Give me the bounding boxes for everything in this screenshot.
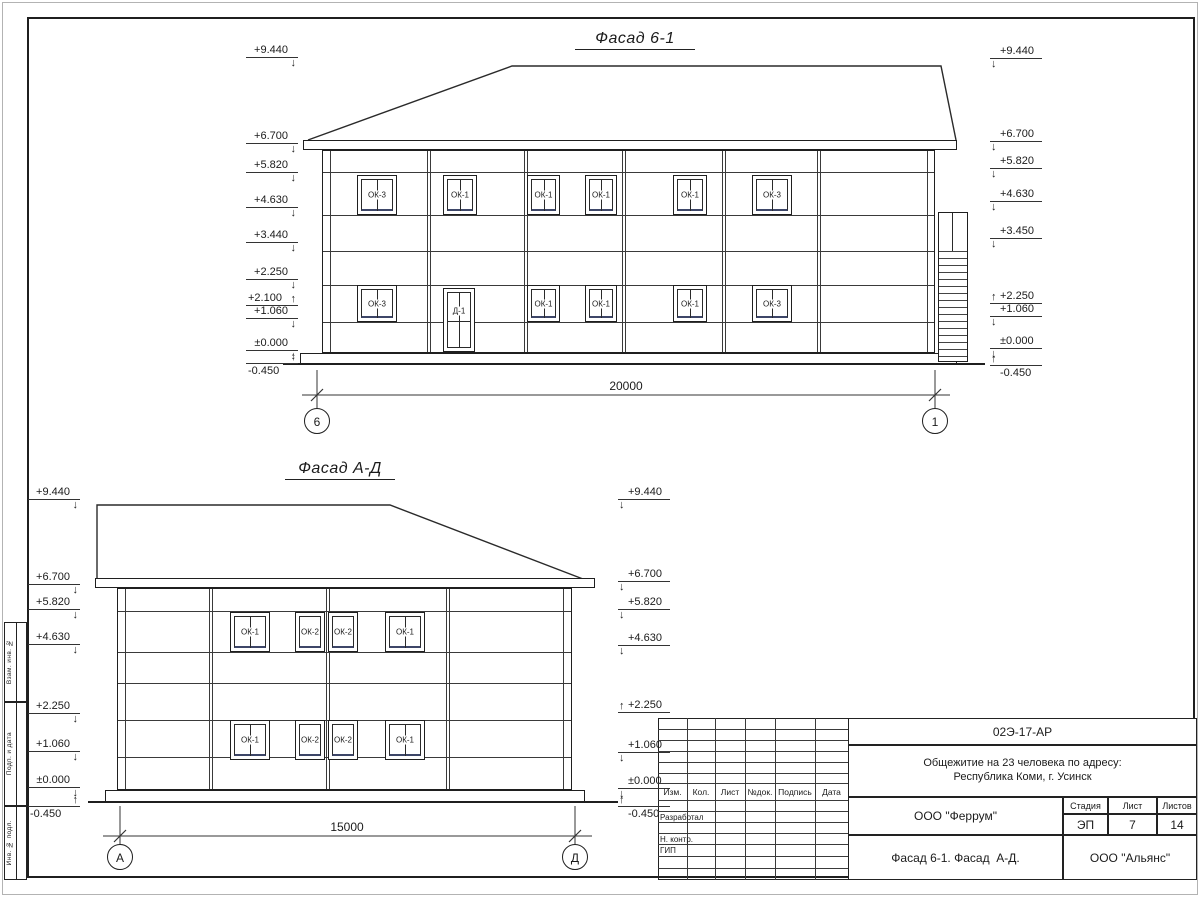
elevation-mark: +3.450↓	[990, 224, 1042, 254]
roof-fascia	[303, 140, 957, 150]
elevation-mark: +4.630↓	[618, 631, 670, 661]
window-label: ОК-3	[367, 299, 387, 308]
window-label: ОК-2	[300, 736, 320, 745]
facade1-dimension: 20000	[596, 379, 656, 393]
panel-joint-horizontal	[118, 683, 571, 684]
elevation-mark: +1.060↓	[28, 737, 80, 767]
stage-label-cell: Стадия	[1063, 797, 1108, 814]
window-ОК-2: ОК-2	[328, 612, 358, 652]
elevation-shelf	[990, 365, 1042, 366]
elevation-value: +6.700	[618, 568, 670, 580]
panel-joint-vertical	[817, 151, 818, 352]
window-ОК-1: ОК-1	[585, 175, 617, 215]
elevation-mark: +4.630↓	[990, 187, 1042, 217]
panel-joint-horizontal	[323, 251, 934, 252]
side-stamp-cell: Подп. и дата	[4, 702, 27, 806]
window-ОК-3: ОК-3	[357, 175, 397, 215]
arrow-down-icon: ↓	[991, 169, 997, 180]
panel-joint-vertical	[524, 151, 525, 352]
title-block-grid-line	[658, 729, 848, 730]
panel-joint-vertical	[446, 589, 447, 789]
axis-circle: А	[107, 844, 133, 870]
arrow-down-icon: ↓	[291, 319, 297, 330]
arrow-up-icon: ↑	[73, 795, 79, 806]
window-ОК-2: ОК-2	[295, 720, 325, 760]
elevation-mark: +9.440↓	[28, 485, 80, 515]
panel-joint-horizontal	[323, 322, 934, 323]
elevation-value: +2.250	[246, 266, 298, 278]
window-ОК-3: ОК-3	[357, 285, 397, 322]
window-label: ОК-1	[534, 299, 554, 308]
title-block-grid-line	[658, 856, 848, 857]
arrow-down-icon: ↓	[619, 582, 625, 593]
arrow-down-icon: ↓	[291, 208, 297, 219]
ladder-rungs	[939, 251, 967, 361]
elevation-value: +3.450	[990, 225, 1042, 237]
arrow-up-icon: ↑	[291, 352, 297, 363]
elevation-mark: +6.700↓	[990, 127, 1042, 157]
window-label: ОК-1	[240, 628, 260, 637]
panel-joint-horizontal	[323, 172, 934, 173]
plinth	[105, 790, 585, 802]
title-block-grid-line	[658, 740, 848, 741]
arrow-down-icon: ↓	[619, 646, 625, 657]
window-ОК-3: ОК-3	[752, 285, 792, 322]
project-line1: Общежитие на 23 человека по адресу:	[923, 757, 1121, 771]
window-label: ОК-1	[240, 736, 260, 745]
window-label: ОК-1	[450, 191, 470, 200]
window-ОК-1: ОК-1	[385, 612, 425, 652]
arrow-down-icon: ↓	[991, 239, 997, 250]
elevation-value: -0.450	[28, 808, 80, 820]
elevation-value: -0.450	[246, 365, 298, 377]
project-name-cell: Общежитие на 23 человека по адресу: Респ…	[848, 745, 1197, 797]
elevation-value: +4.630	[618, 632, 670, 644]
railing-post	[952, 213, 953, 251]
arrow-down-icon: ↓	[73, 714, 79, 725]
elevation-mark: +6.700↓	[246, 129, 298, 159]
elevation-value: +5.820	[246, 159, 298, 171]
sheet-number-cell: 7	[1108, 814, 1157, 835]
title-block-grid-line	[658, 751, 848, 752]
panel-joint-vertical	[449, 589, 450, 789]
axis-circle: 1	[922, 408, 948, 434]
window-label: ОК-2	[300, 628, 320, 637]
entrance-door: Д-1	[443, 288, 475, 352]
arrow-up-icon: ↑	[991, 354, 997, 365]
column-header: №док.	[745, 784, 775, 799]
elevation-value: +6.700	[28, 571, 80, 583]
pilaster-line	[927, 151, 928, 352]
sheet-label-cell: Лист	[1108, 797, 1157, 814]
window-label: ОК-1	[680, 299, 700, 308]
arrow-down-icon: ↓	[619, 610, 625, 621]
elevation-shelf	[28, 806, 80, 807]
elevation-value: +6.700	[246, 130, 298, 142]
axis-circle: Д	[562, 844, 588, 870]
arrow-down-icon: ↓	[291, 243, 297, 254]
window-label: ОК-1	[680, 191, 700, 200]
side-stamp-cell: Взам. инв. №	[4, 622, 27, 702]
role-label: Разработал	[660, 811, 715, 823]
elevation-mark: -0.450↑	[246, 349, 298, 379]
pilaster-line	[330, 151, 331, 352]
elevation-value: +4.630	[246, 194, 298, 206]
exterior-ladder	[938, 212, 968, 362]
title-block-grid-line	[658, 762, 848, 763]
window-ОК-1: ОК-1	[527, 175, 560, 215]
sheets-total-cell: 14	[1157, 814, 1197, 835]
elevation-value: +9.440	[990, 45, 1042, 57]
elevation-shelf	[618, 806, 670, 807]
window-ОК-2: ОК-2	[295, 612, 325, 652]
arrow-down-icon: ↓	[73, 500, 79, 511]
elevation-mark: +5.820↓	[618, 595, 670, 625]
side-stamp-divider	[16, 623, 17, 701]
elevation-value: +1.060	[28, 738, 80, 750]
elevation-value: +5.820	[990, 155, 1042, 167]
stage-value-cell: ЭП	[1063, 814, 1108, 835]
arrow-down-icon: ↓	[991, 202, 997, 213]
elevation-mark: +3.440↓	[246, 228, 298, 258]
elevation-shelf	[618, 609, 670, 610]
elevation-value: +2.250	[990, 290, 1042, 302]
elevation-shelf	[990, 201, 1042, 202]
door-crossbar	[447, 321, 471, 322]
elevation-value: +6.700	[990, 128, 1042, 140]
elevation-value: +9.440	[28, 486, 80, 498]
elevation-shelf	[990, 316, 1042, 317]
panel-joint-vertical	[430, 151, 431, 352]
elevation-shelf	[618, 581, 670, 582]
elevation-value: -0.450	[990, 367, 1042, 379]
elevation-mark: +5.820↓	[990, 154, 1042, 184]
elevation-mark: +1.060↓	[618, 738, 670, 768]
panel-joint-horizontal	[323, 285, 934, 286]
elevation-shelf	[618, 712, 670, 713]
doc-number-cell: 02Э-17-АР	[848, 718, 1197, 745]
window-label: ОК-1	[395, 628, 415, 637]
elevation-value: +9.440	[618, 486, 670, 498]
pilaster-line	[125, 589, 126, 789]
roof-fascia	[95, 578, 595, 588]
elevation-mark: +5.820↓	[28, 595, 80, 625]
window-ОК-1: ОК-1	[527, 285, 560, 322]
role-label: ГИП	[660, 844, 715, 856]
facade2-dimension: 15000	[317, 820, 377, 834]
arrow-up-icon: ↑	[619, 795, 625, 806]
window-label: ОК-2	[333, 736, 353, 745]
elevation-value: +9.440	[246, 44, 298, 56]
elevation-shelf	[618, 645, 670, 646]
arrow-down-icon: ↓	[619, 753, 625, 764]
window-label: ОК-2	[333, 628, 353, 637]
facade1-title: Фасад 6-1	[575, 30, 695, 50]
title-block-grid-line	[658, 800, 848, 801]
window-ОК-3: ОК-3	[752, 175, 792, 215]
elevation-mark: +2.250↓	[28, 699, 80, 729]
elevation-mark: +9.440↓	[990, 44, 1042, 74]
sheet-title-cell: Фасад 6-1. Фасад А-Д.	[848, 835, 1063, 880]
ladder-railing	[939, 213, 967, 252]
arrow-down-icon: ↓	[73, 610, 79, 621]
elevation-value: ±0.000	[246, 337, 298, 349]
elevation-shelf	[618, 752, 670, 753]
window-label: ОК-3	[367, 191, 387, 200]
title-block-grid-line	[658, 868, 848, 869]
elevation-value: +2.250	[618, 699, 670, 711]
side-stamp-label: Взам. инв. №	[6, 639, 13, 684]
elevation-value: ±0.000	[28, 774, 80, 786]
panel-joint-vertical	[820, 151, 821, 352]
elevation-value: +5.820	[28, 596, 80, 608]
side-stamp-divider	[16, 703, 17, 805]
elevation-value: +1.060	[246, 305, 298, 317]
door-mullion	[459, 292, 460, 348]
org-cell: ООО "Феррум"	[848, 797, 1063, 835]
elevation-value: +3.440	[246, 229, 298, 241]
elevation-shelf	[246, 363, 298, 364]
window-label: ОК-3	[762, 299, 782, 308]
elevation-mark: -0.450↑	[990, 351, 1042, 381]
column-header: Лист	[715, 784, 745, 799]
arrow-down-icon: ↓	[291, 58, 297, 69]
arrow-down-icon: ↓	[291, 280, 297, 291]
window-label: ОК-1	[591, 299, 611, 308]
window-label: ОК-1	[395, 736, 415, 745]
elevation-shelf	[990, 238, 1042, 239]
column-header: Кол.	[687, 784, 715, 799]
panel-joint-horizontal	[118, 652, 571, 653]
arrow-down-icon: ↓	[991, 142, 997, 153]
elevation-mark: +2.250↑	[618, 698, 670, 728]
title-block-grid-line	[658, 773, 848, 774]
window-ОК-1: ОК-1	[443, 175, 477, 215]
elevation-mark: +9.440↓	[618, 485, 670, 515]
panel-joint-vertical	[427, 151, 428, 352]
elevation-value: +5.820	[618, 596, 670, 608]
project-line2: Республика Коми, г. Усинск	[953, 771, 1091, 785]
plinth	[300, 353, 957, 364]
elevation-shelf	[990, 348, 1042, 349]
panel-joint-vertical	[209, 589, 210, 789]
window-ОК-1: ОК-1	[585, 285, 617, 322]
elevation-value: +2.250	[28, 700, 80, 712]
column-header: Изм.	[658, 784, 687, 799]
elevation-value: ±0.000	[990, 335, 1042, 347]
side-stamp-label: Подп. и дата	[6, 732, 13, 775]
pilaster-line	[563, 589, 564, 789]
panel-joint-vertical	[625, 151, 626, 352]
panel-joint-vertical	[326, 589, 327, 789]
window-ОК-2: ОК-2	[328, 720, 358, 760]
elevation-shelf	[990, 168, 1042, 169]
elevation-mark: -0.450↑	[28, 792, 80, 822]
window-ОК-1: ОК-1	[385, 720, 425, 760]
window-ОК-1: ОК-1	[673, 175, 707, 215]
elevation-mark: +1.060↓	[990, 302, 1042, 332]
elevation-value: +4.630	[990, 188, 1042, 200]
sheets-label-cell: Листов	[1157, 797, 1197, 814]
arrow-down-icon: ↓	[291, 173, 297, 184]
elevation-mark: +5.820↓	[246, 158, 298, 188]
arrow-down-icon: ↓	[291, 144, 297, 155]
column-header: Дата	[815, 784, 848, 799]
arrow-down-icon: ↓	[73, 752, 79, 763]
window-label: ОК-3	[762, 191, 782, 200]
drawing-sheet: Фасад 6-1 Фасад А-Д 20000 15000 02Э-17-А…	[0, 0, 1200, 900]
axis-circle: 6	[304, 408, 330, 434]
window-ОК-1: ОК-1	[230, 720, 270, 760]
elevation-mark: +9.440↓	[246, 43, 298, 73]
column-header: Подпись	[775, 784, 815, 799]
elevation-shelf	[990, 58, 1042, 59]
arrow-up-icon: ↑	[619, 701, 625, 712]
side-stamp-label: Инв. № подл.	[6, 820, 13, 865]
arrow-down-icon: ↓	[73, 645, 79, 656]
elevation-shelf	[990, 141, 1042, 142]
elevation-value: +1.060	[990, 303, 1042, 315]
arrow-down-icon: ↓	[991, 59, 997, 70]
elevation-mark: +4.630↓	[28, 630, 80, 660]
window-label: ОК-1	[534, 191, 554, 200]
facade2-title: Фасад А-Д	[285, 460, 395, 480]
panel-joint-horizontal	[323, 215, 934, 216]
arrow-down-icon: ↓	[619, 500, 625, 511]
arrow-down-icon: ↓	[991, 317, 997, 328]
window-ОК-1: ОК-1	[230, 612, 270, 652]
elevation-value: +4.630	[28, 631, 80, 643]
elevation-mark: +6.700↓	[618, 567, 670, 597]
side-stamp-cell: Инв. № подл.	[4, 806, 27, 880]
door-label: Д-1	[452, 307, 467, 316]
panel-joint-vertical	[725, 151, 726, 352]
elevation-mark: +4.630↓	[246, 193, 298, 223]
panel-joint-vertical	[722, 151, 723, 352]
elevation-shelf	[618, 499, 670, 500]
org2-cell: ООО "Альянс"	[1063, 835, 1197, 880]
window-label: ОК-1	[591, 191, 611, 200]
side-stamp-divider	[16, 807, 17, 879]
panel-joint-vertical	[212, 589, 213, 789]
panel-joint-vertical	[622, 151, 623, 352]
window-ОК-1: ОК-1	[673, 285, 707, 322]
elevation-mark: +1.060↓	[246, 304, 298, 334]
